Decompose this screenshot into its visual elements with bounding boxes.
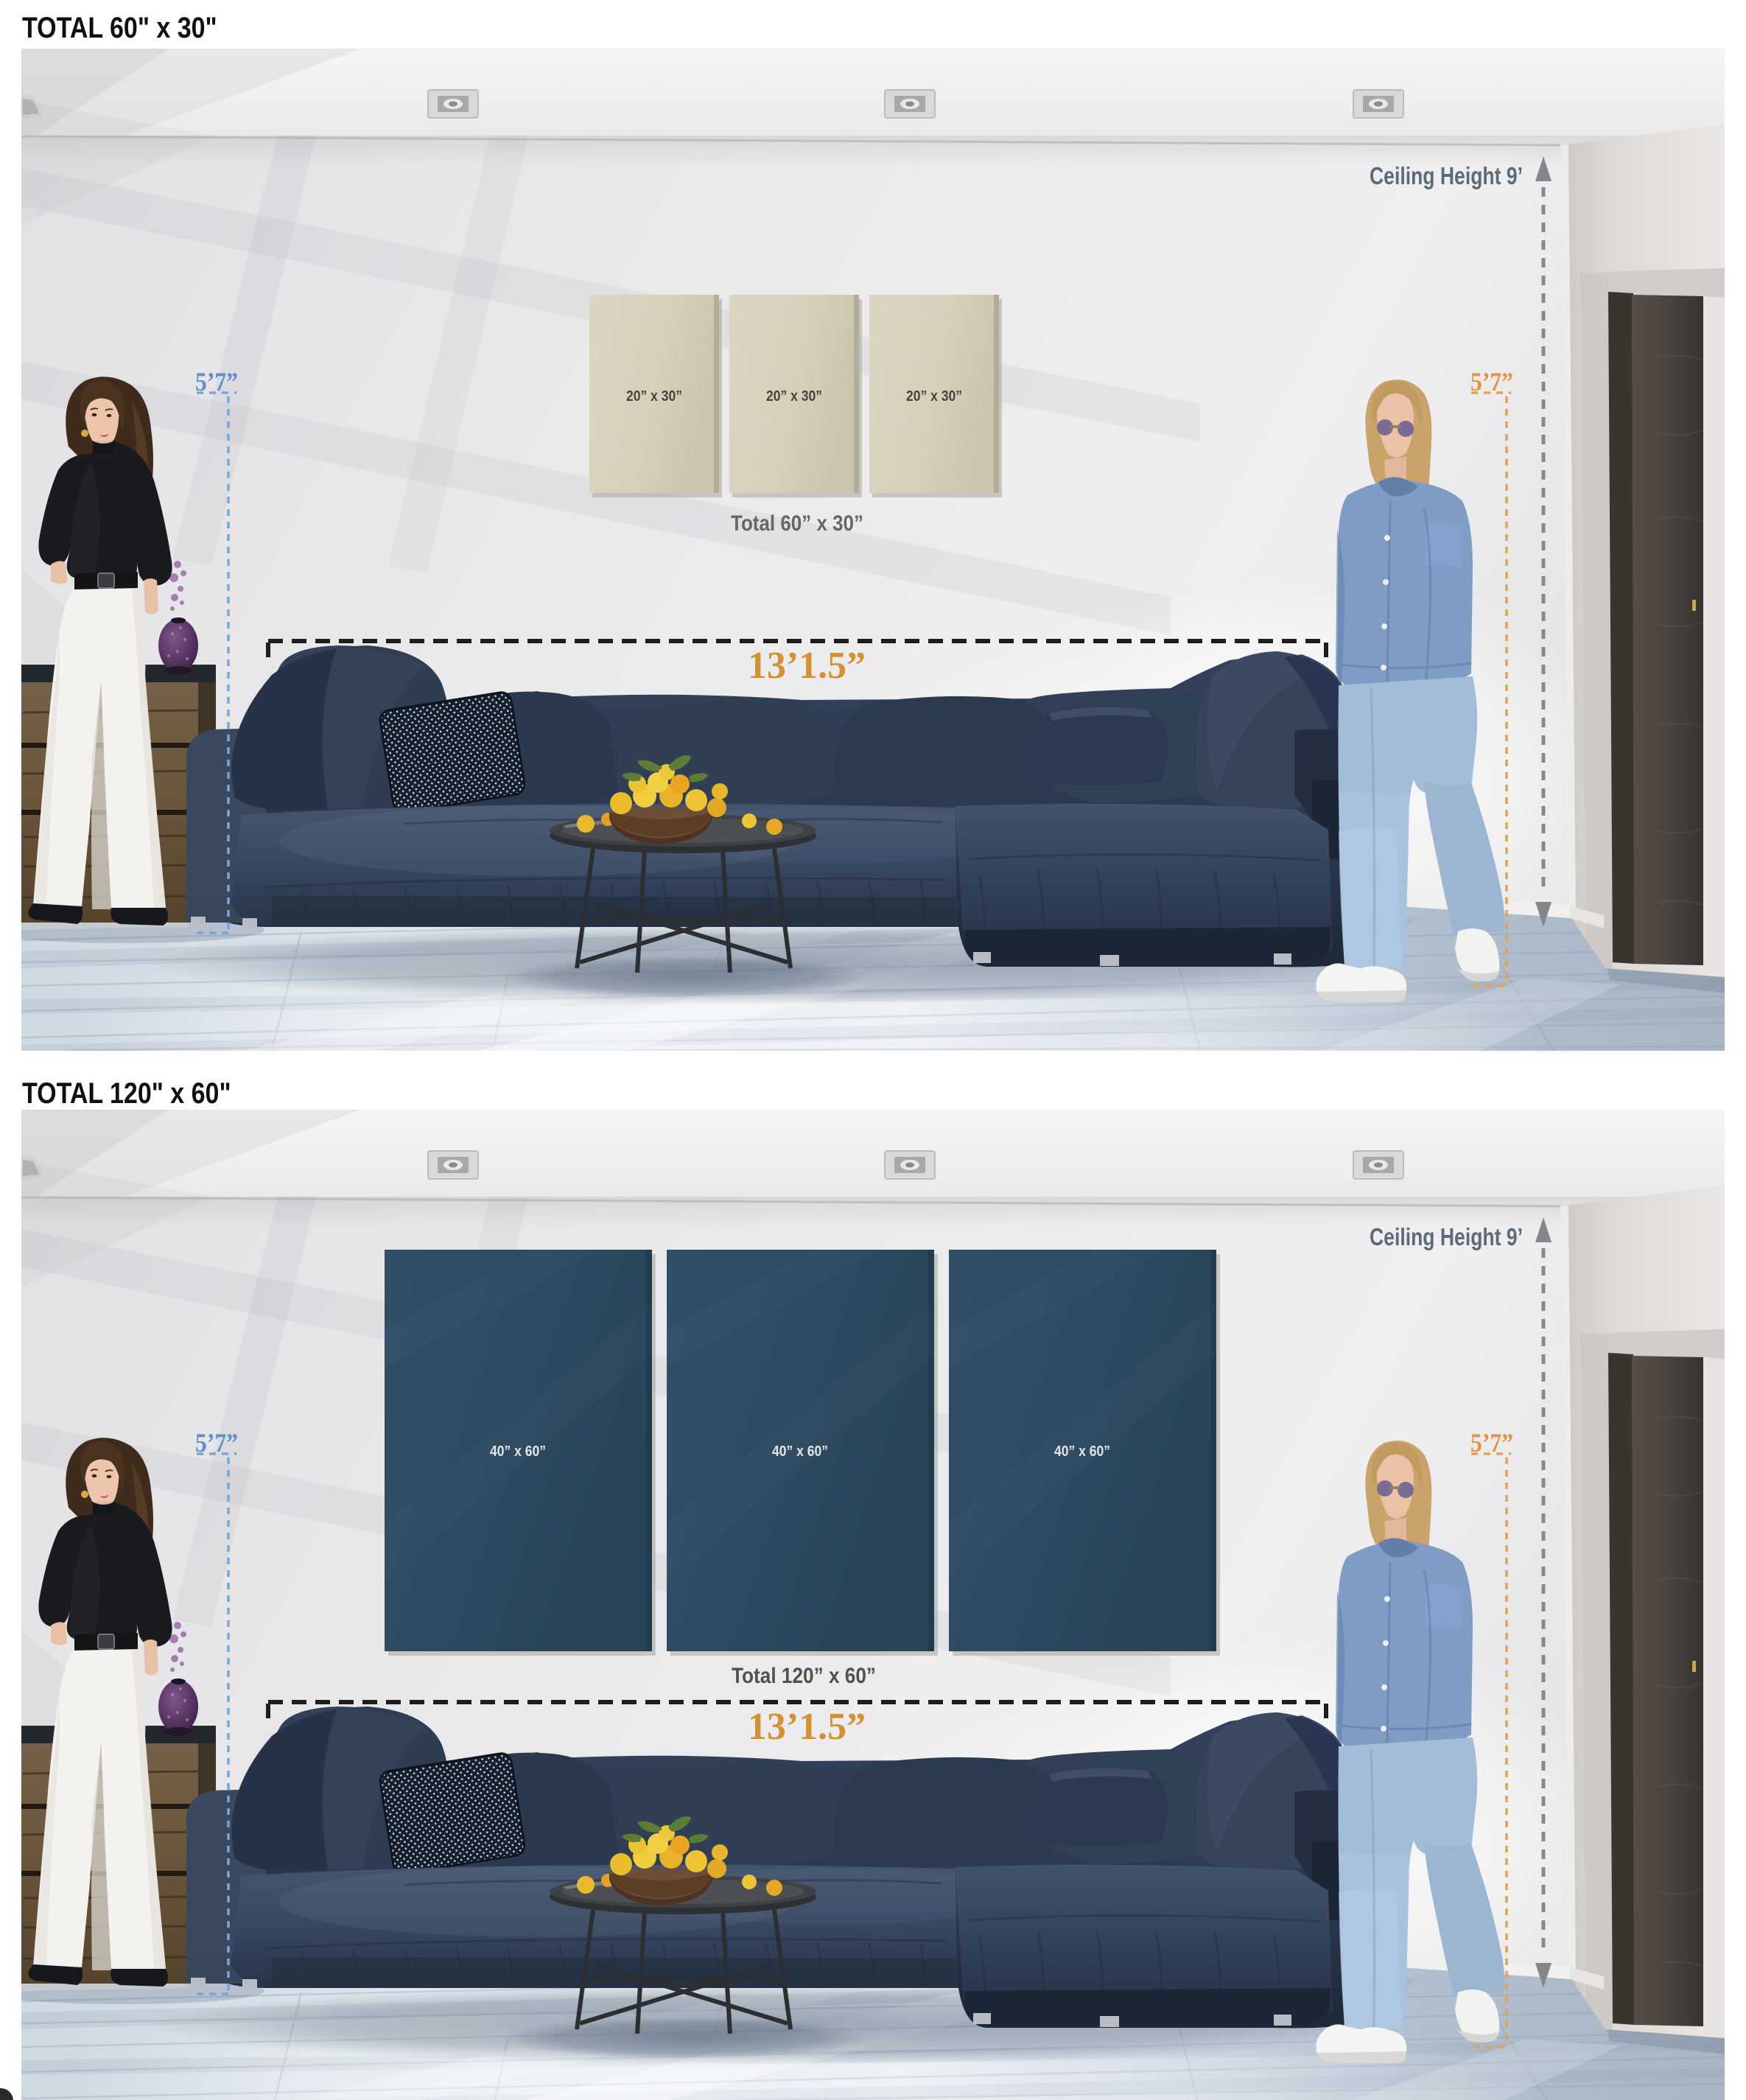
svg-text:20” x 30”: 20” x 30” bbox=[766, 388, 822, 405]
svg-text:Ceiling Height 9’: Ceiling Height 9’ bbox=[1370, 1223, 1523, 1250]
svg-text:Total 60” x 30”: Total 60” x 30” bbox=[731, 511, 863, 536]
svg-text:13’1.5”: 13’1.5” bbox=[748, 1706, 866, 1748]
svg-text:20” x 30”: 20” x 30” bbox=[626, 388, 682, 405]
svg-text:40” x 60”: 40” x 60” bbox=[490, 1443, 546, 1460]
svg-text:20” x 30”: 20” x 30” bbox=[906, 388, 962, 405]
svg-text:Total 120” x 60”: Total 120” x 60” bbox=[732, 1664, 876, 1688]
svg-text:Ceiling Height 9’: Ceiling Height 9’ bbox=[1370, 162, 1523, 189]
svg-text:40” x 60”: 40” x 60” bbox=[772, 1443, 828, 1460]
svg-text:40” x 60”: 40” x 60” bbox=[1054, 1443, 1110, 1460]
svg-text:13’1.5”: 13’1.5” bbox=[748, 645, 866, 687]
